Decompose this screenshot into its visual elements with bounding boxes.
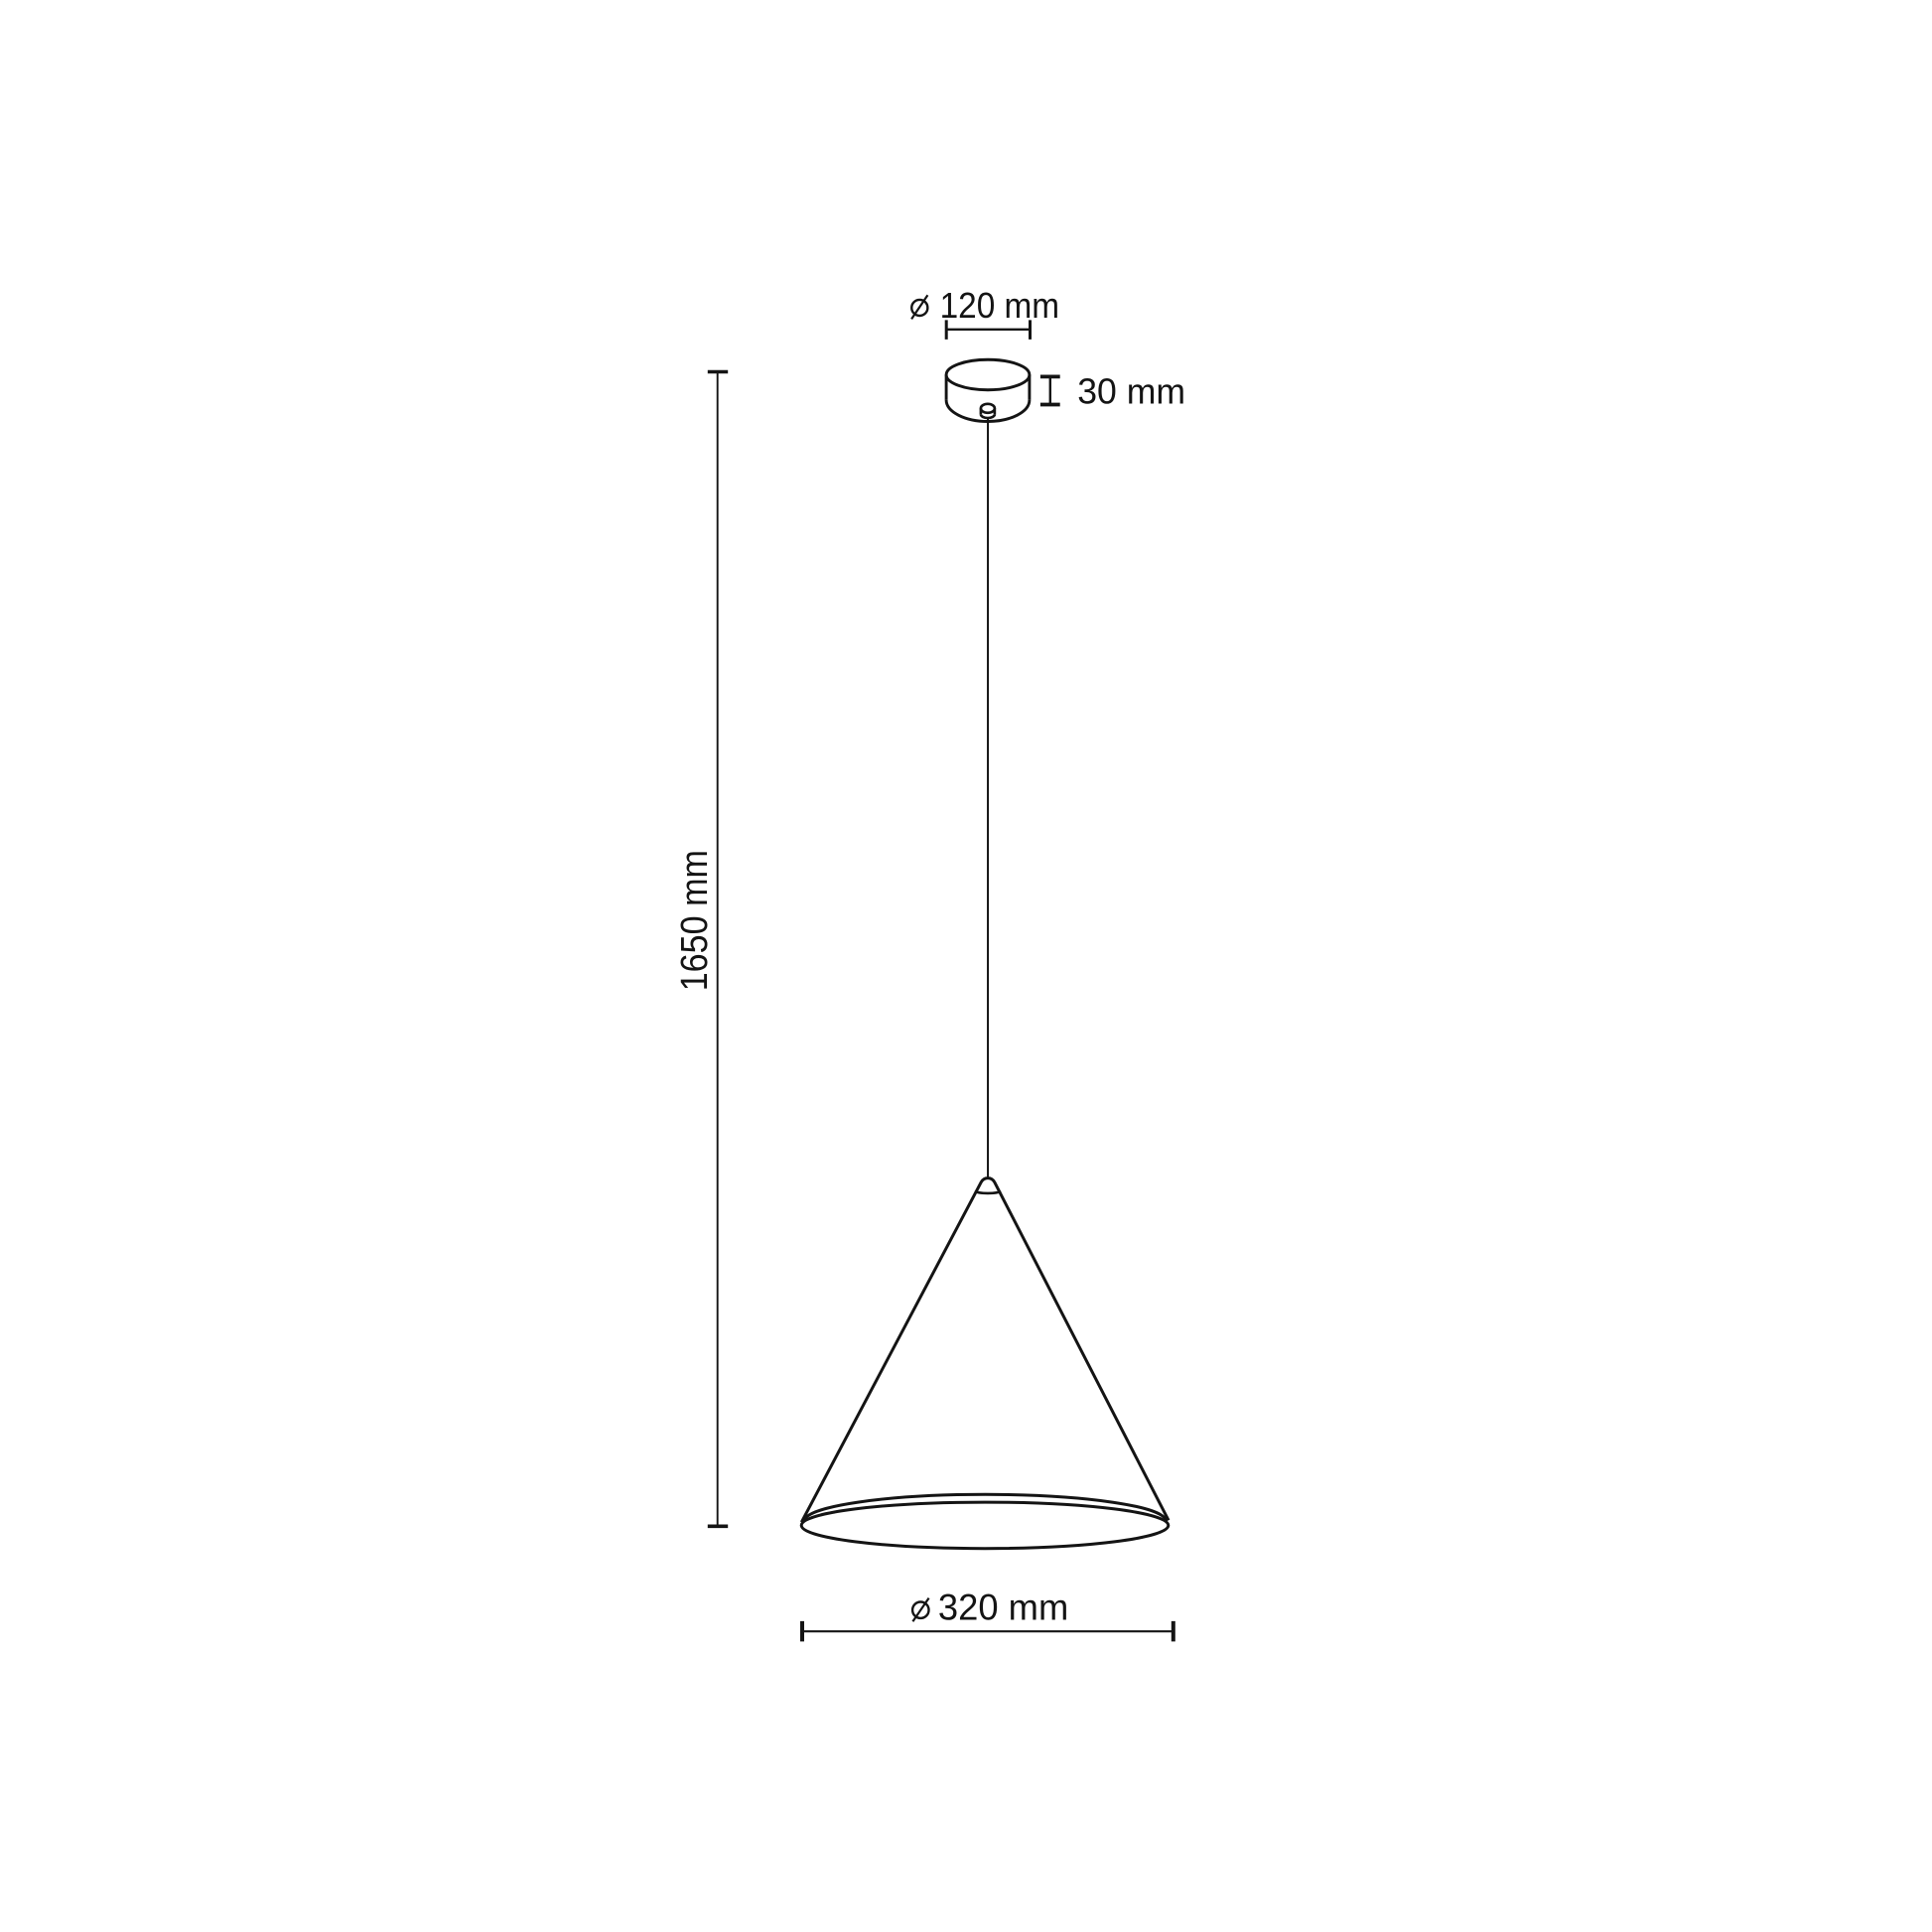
svg-text:1650 mm: 1650 mm — [672, 850, 715, 991]
svg-text:30 mm: 30 mm — [1077, 371, 1185, 411]
svg-text:120 mm: 120 mm — [940, 287, 1059, 326]
svg-text:320 mm: 320 mm — [938, 1587, 1068, 1627]
